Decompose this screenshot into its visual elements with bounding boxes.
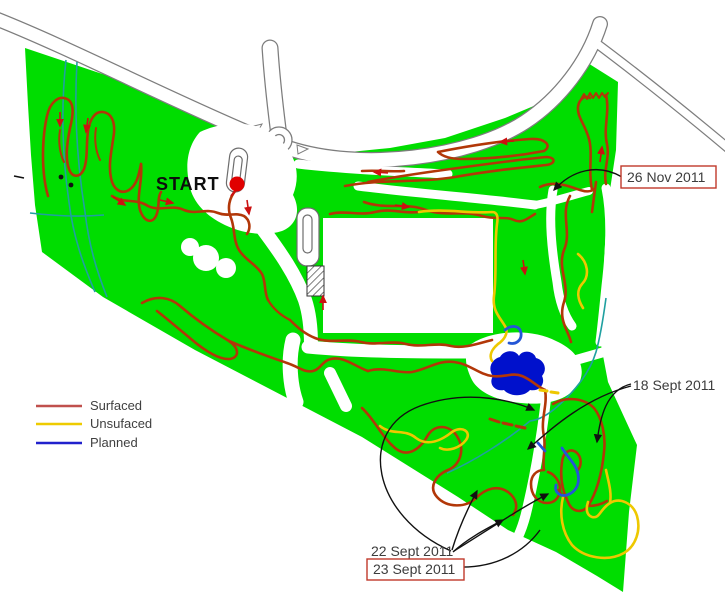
legend-label-unsurfaced: Unsufaced [90, 416, 152, 431]
annotation-sept22: 22 Sept 2011 [371, 543, 453, 559]
poi-dot [59, 175, 64, 180]
road-north-fill [270, 48, 279, 136]
legend-row-surfaced: Surfaced [36, 398, 142, 413]
clearing-paw-2 [216, 258, 236, 278]
clearing-paw-3 [181, 238, 199, 256]
legend-label-planned: Planned [90, 435, 138, 450]
annotation-nov26: 26 Nov 2011 [621, 166, 716, 188]
annotation-text-nov26: 26 Nov 2011 [627, 169, 706, 185]
legend-label-surfaced: Surfaced [90, 398, 142, 413]
annotation-text-sept18: 18 Sept 2011 [633, 377, 715, 393]
hatched-building [307, 266, 324, 296]
direction-arrow [374, 172, 388, 173]
start-label: START [156, 174, 220, 194]
annotation-text-sept23: 23 Sept 2011 [373, 561, 455, 577]
trail-map-canvas: START 26 Nov 2011 18 Sept 2011 22 Sept 2… [0, 0, 725, 600]
path-to-diagonal-edge [290, 340, 296, 402]
building-hatch [307, 266, 324, 296]
annotation-sept23: 23 Sept 2011 [367, 559, 464, 580]
legend-row-unsurfaced: Unsufaced [36, 416, 152, 431]
trail-band-west-spur [362, 171, 404, 172]
annotation-text-sept22: 22 Sept 2011 [371, 543, 453, 559]
poi-dash [14, 176, 24, 178]
start-dot [230, 177, 245, 192]
trail-map: START 26 Nov 2011 18 Sept 2011 22 Sept 2… [0, 0, 725, 600]
poi-dot [69, 183, 74, 188]
direction-arrow [500, 141, 514, 142]
legend-row-planned: Planned [36, 435, 138, 450]
field [323, 218, 493, 333]
path-below-field [308, 347, 470, 352]
legend: Surfaced Unsufaced Planned [36, 398, 152, 450]
loop-south-inner [303, 215, 312, 253]
annotation-sept18: 18 Sept 2011 [633, 377, 715, 393]
